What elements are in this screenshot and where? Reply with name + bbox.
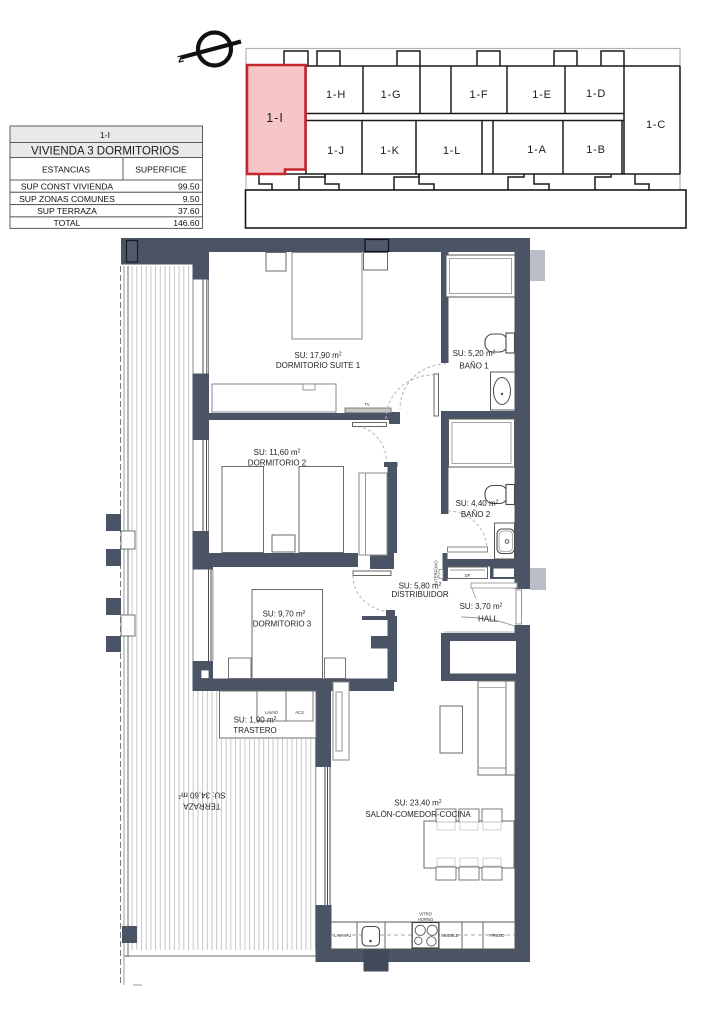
svg-text:SU: 1,90 m2: SU: 1,90 m2 xyxy=(234,716,277,725)
svg-text:1-I: 1-I xyxy=(266,111,284,125)
svg-text:VITRO: VITRO xyxy=(419,912,433,917)
svg-text:LAVAVAJ: LAVAVAJ xyxy=(334,933,351,938)
svg-text:SUPERFICIE: SUPERFICIE xyxy=(135,165,187,175)
svg-text:ESTANCIAS: ESTANCIAS xyxy=(42,165,90,175)
svg-text:BAÑO 1: BAÑO 1 xyxy=(459,362,489,371)
svg-text:146.60: 146.60 xyxy=(173,218,200,228)
svg-text:1-D: 1-D xyxy=(586,88,606,100)
svg-text:1-B: 1-B xyxy=(586,144,606,156)
svg-text:1-K: 1-K xyxy=(380,145,400,157)
svg-text:1-E: 1-E xyxy=(532,89,552,101)
svg-text:1-F: 1-F xyxy=(470,89,489,101)
svg-text:VIVIENDA 3 DORMITORIOS: VIVIENDA 3 DORMITORIOS xyxy=(31,146,179,158)
svg-text:SUP CONST VIVIENDA: SUP CONST VIVIENDA xyxy=(21,182,114,192)
svg-text:FRIGO: FRIGO xyxy=(489,933,504,939)
svg-text:DISTRIBUIDOR: DISTRIBUIDOR xyxy=(391,590,449,599)
svg-text:1-G: 1-G xyxy=(381,89,402,101)
svg-text:TRASTERO: TRASTERO xyxy=(233,726,277,735)
svg-text:1-A: 1-A xyxy=(527,144,547,156)
svg-text:99.50: 99.50 xyxy=(178,182,200,192)
svg-text:HALL: HALL xyxy=(478,615,499,624)
svg-text:MUEBLE: MUEBLE xyxy=(441,933,458,938)
svg-text:SUP TERRAZA: SUP TERRAZA xyxy=(37,206,97,216)
svg-text:SU: 11,60 m2: SU: 11,60 m2 xyxy=(254,448,301,457)
svg-text:SU: 3,70 m2: SU: 3,70 m2 xyxy=(460,602,503,611)
svg-text:SU: 9,70 m2: SU: 9,70 m2 xyxy=(263,610,306,619)
svg-text:DORMITORIO 2: DORMITORIO 2 xyxy=(248,459,307,468)
svg-text:DF: DF xyxy=(465,573,471,578)
svg-text:TERRAZA: TERRAZA xyxy=(183,802,221,811)
svg-text:LAVAD: LAVAD xyxy=(265,710,278,715)
svg-text:9.50: 9.50 xyxy=(183,194,200,204)
svg-text:HORNO: HORNO xyxy=(418,917,434,922)
svg-text:DORMITORIO 3: DORMITORIO 3 xyxy=(253,620,312,629)
svg-text:1-I: 1-I xyxy=(100,130,110,140)
svg-text:SU: 4,40 m2: SU: 4,40 m2 xyxy=(456,499,499,508)
svg-text:TV: TV xyxy=(364,402,370,407)
svg-text:ACS: ACS xyxy=(295,710,304,715)
svg-text:SUP ZONAS COMUNES: SUP ZONAS COMUNES xyxy=(19,194,115,204)
svg-text:1-J: 1-J xyxy=(327,145,345,157)
svg-text:1-L: 1-L xyxy=(443,145,461,157)
svg-text:SU: 17,90 m2: SU: 17,90 m2 xyxy=(294,351,341,360)
svg-text:37.60: 37.60 xyxy=(178,206,200,216)
svg-text:1-C: 1-C xyxy=(646,119,666,131)
svg-text:TOTAL: TOTAL xyxy=(54,218,81,228)
svg-text:SU: 5,20 m2: SU: 5,20 m2 xyxy=(453,349,496,358)
svg-text:DORMITORIO SUITE 1: DORMITORIO SUITE 1 xyxy=(276,361,361,370)
svg-text:SU: 34,60 m2: SU: 34,60 m2 xyxy=(178,791,225,800)
svg-text:SU: 23,40 m2: SU: 23,40 m2 xyxy=(394,799,441,808)
svg-text:SALÓN-COMEDOR-COCINA: SALÓN-COMEDOR-COCINA xyxy=(365,810,471,819)
svg-text:1-H: 1-H xyxy=(326,89,346,101)
svg-text:BAÑO 2: BAÑO 2 xyxy=(461,510,491,519)
